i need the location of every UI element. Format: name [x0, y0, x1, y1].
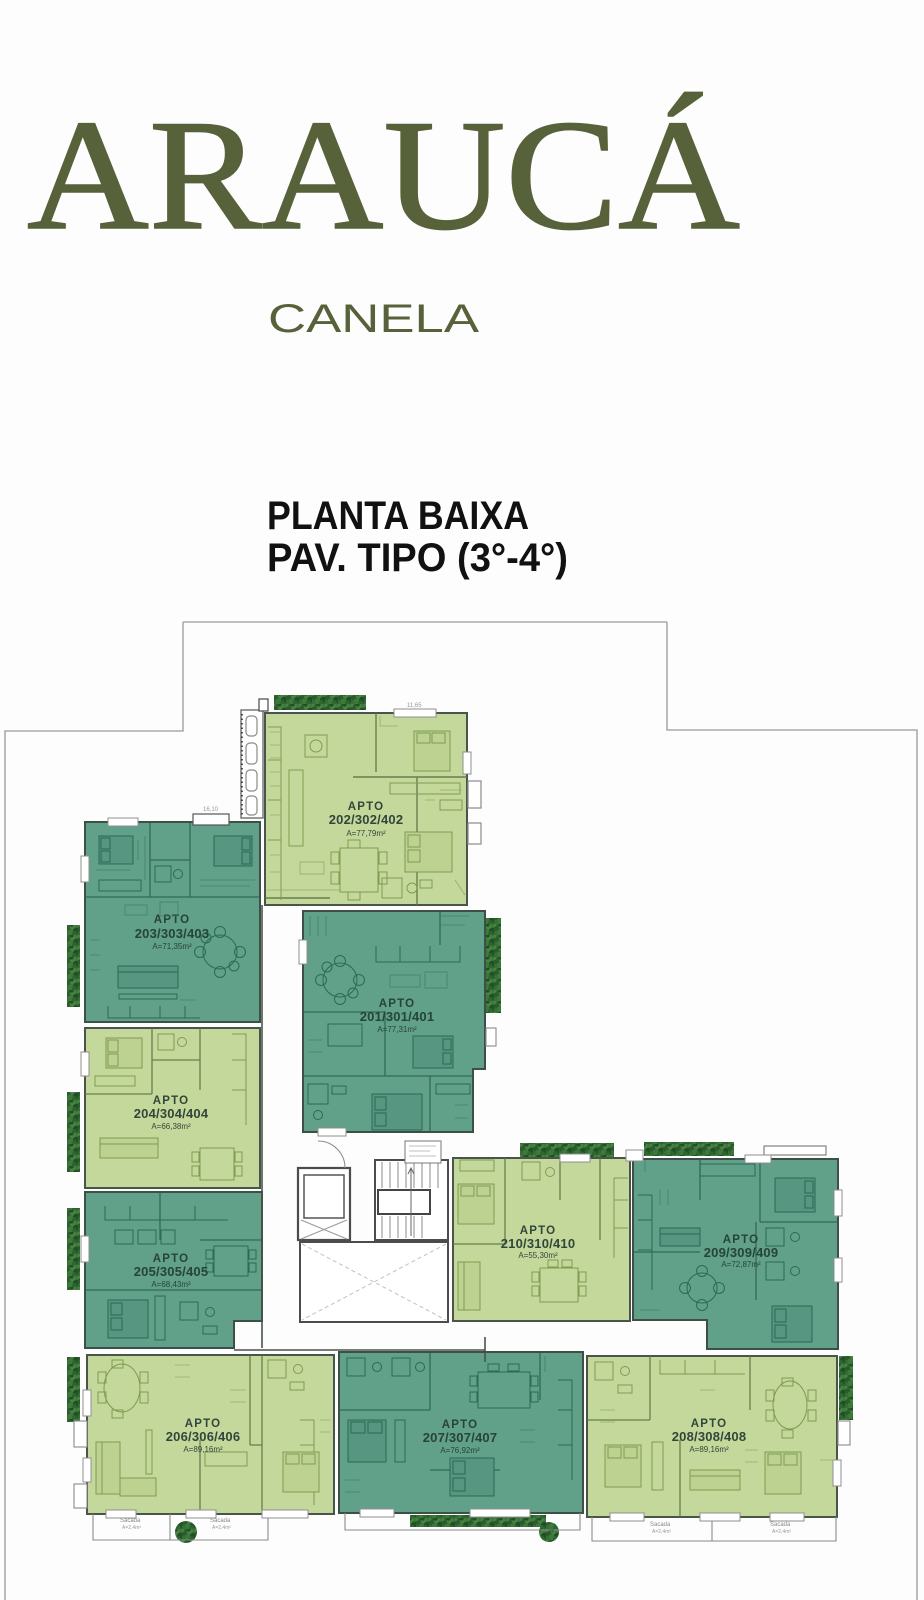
svg-text:A=68,43m²: A=68,43m²	[151, 1280, 191, 1289]
svg-text:201/301/401: 201/301/401	[360, 1009, 435, 1024]
svg-text:204/304/404: 204/304/404	[134, 1106, 209, 1121]
svg-text:210/310/410: 210/310/410	[501, 1236, 576, 1251]
svg-text:PLANTA BAIXA: PLANTA BAIXA	[267, 494, 529, 538]
svg-text:A=77,31m²: A=77,31m²	[377, 1025, 417, 1034]
svg-text:A=71,35m²: A=71,35m²	[152, 942, 192, 951]
svg-text:A=55,30m²: A=55,30m²	[518, 1251, 558, 1260]
svg-text:A=77,79m²: A=77,79m²	[346, 829, 386, 838]
svg-text:202/302/402: 202/302/402	[329, 812, 404, 827]
svg-text:205/305/405: 205/305/405	[134, 1264, 209, 1279]
svg-text:16,10: 16,10	[203, 807, 219, 813]
svg-text:A=2,4m²: A=2,4m²	[772, 1529, 791, 1535]
svg-text:ARAUCÁ: ARAUCÁ	[27, 88, 740, 263]
svg-text:Sacada: Sacada	[650, 1522, 671, 1528]
svg-text:Sacada: Sacada	[770, 1522, 791, 1528]
svg-text:CANELA: CANELA	[268, 297, 479, 341]
svg-text:A=72,87m²: A=72,87m²	[721, 1260, 761, 1269]
svg-text:207/307/407: 207/307/407	[423, 1430, 498, 1445]
svg-text:A=66,38m²: A=66,38m²	[151, 1122, 191, 1131]
svg-text:208/308/408: 208/308/408	[672, 1429, 747, 1444]
svg-text:206/306/406: 206/306/406	[166, 1429, 241, 1444]
svg-text:PAV. TIPO (3°-4°): PAV. TIPO (3°-4°)	[267, 536, 568, 580]
svg-text:Sacada: Sacada	[120, 1518, 141, 1524]
svg-text:A=89,16m²: A=89,16m²	[183, 1445, 223, 1454]
svg-text:A=2,4m²: A=2,4m²	[122, 1525, 141, 1531]
svg-text:A=76,92m²: A=76,92m²	[440, 1446, 480, 1455]
svg-text:11,65: 11,65	[407, 703, 422, 709]
svg-text:A=2,4m²: A=2,4m²	[212, 1525, 231, 1531]
svg-text:A=2,4m²: A=2,4m²	[652, 1529, 671, 1535]
svg-text:203/303/403: 203/303/403	[135, 926, 210, 941]
svg-text:Sacada: Sacada	[210, 1518, 231, 1524]
svg-text:209/309/409: 209/309/409	[704, 1245, 779, 1260]
svg-text:A=89,16m²: A=89,16m²	[689, 1445, 729, 1454]
